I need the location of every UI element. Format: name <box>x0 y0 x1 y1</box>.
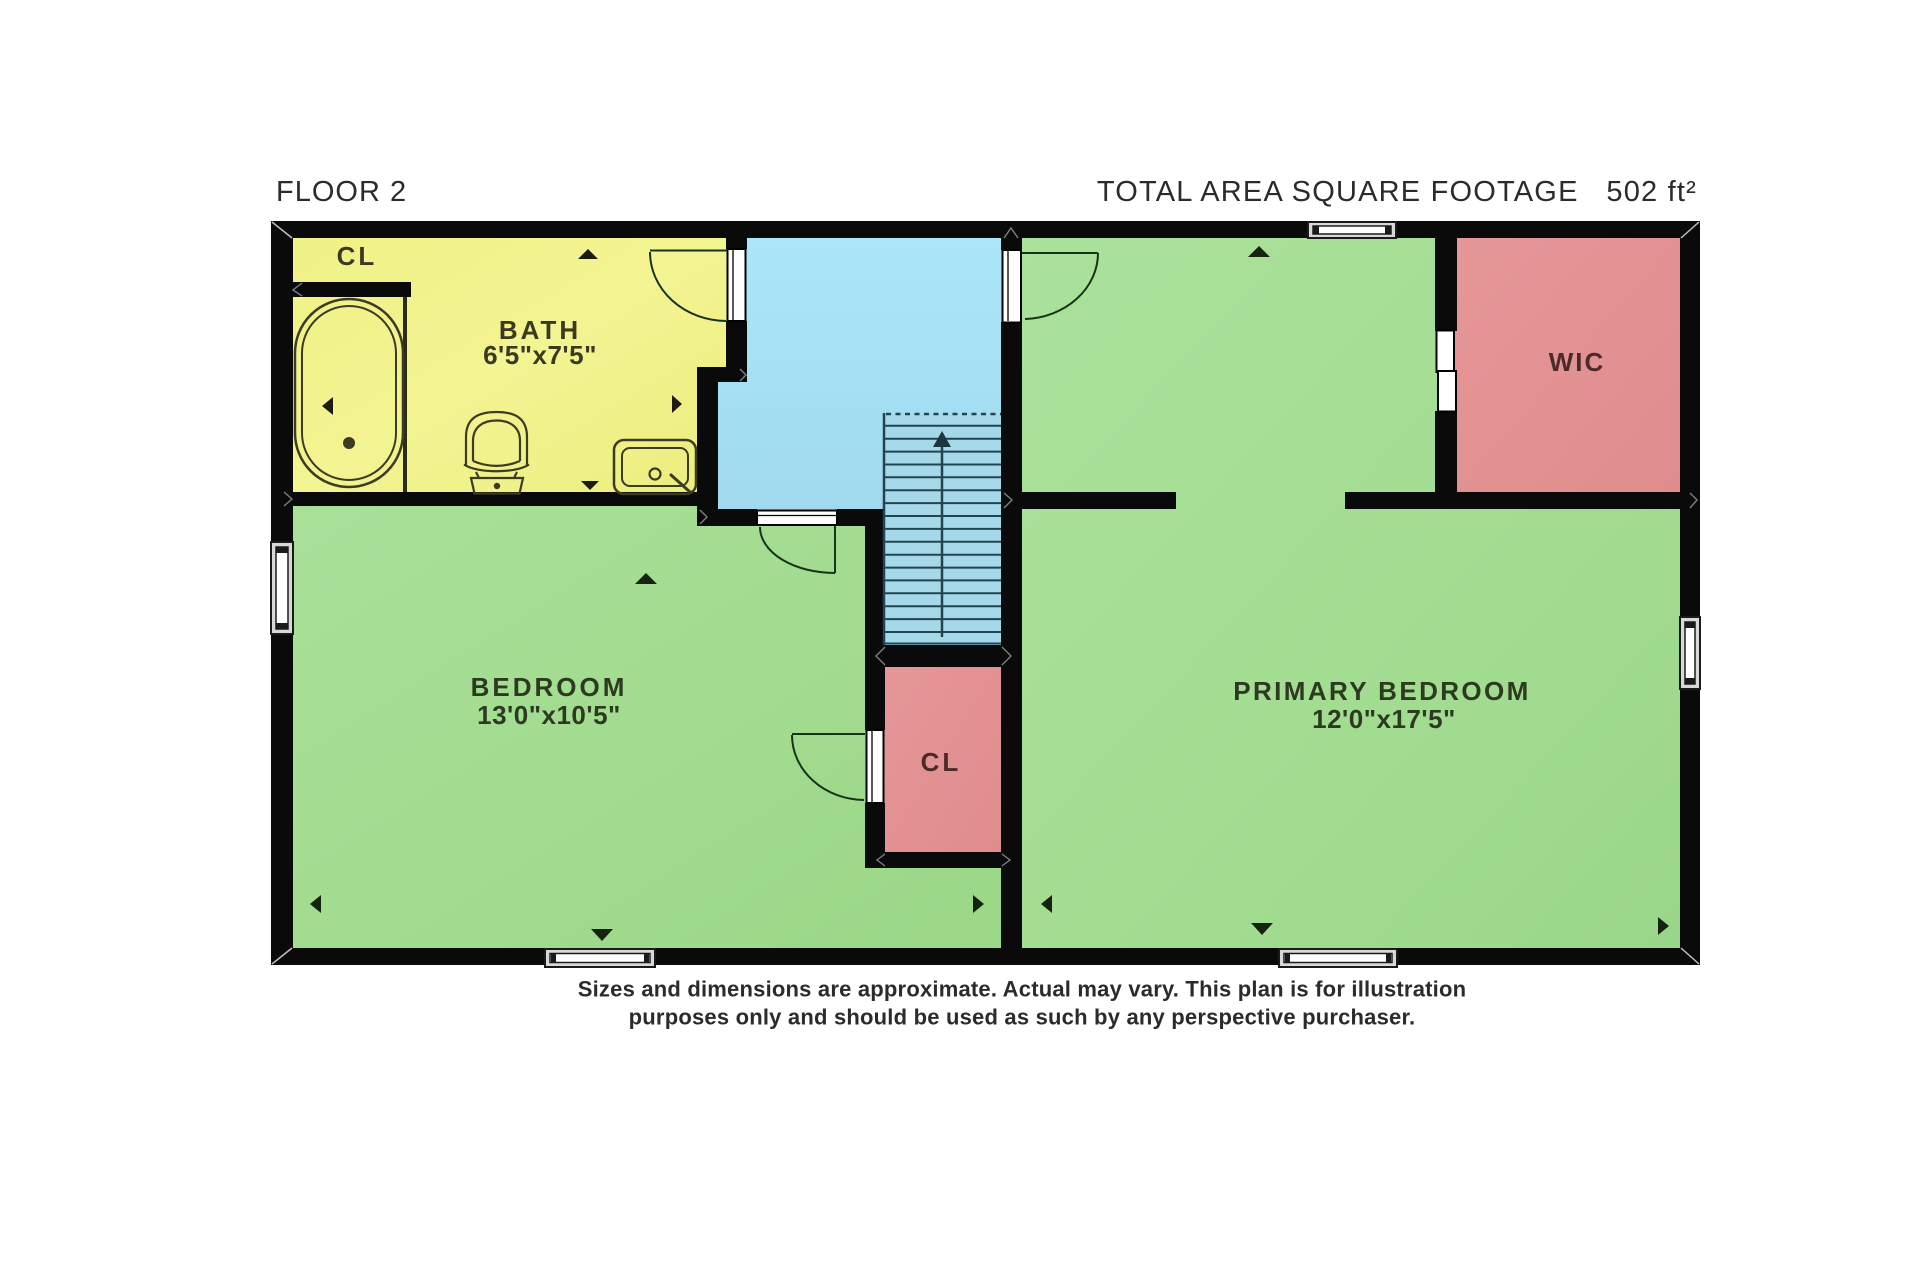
svg-text:TOTAL AREA SQUARE FOOTAGE 50: TOTAL AREA SQUARE FOOTAGE 502 ft² <box>1097 176 1697 208</box>
svg-text:purposes only and should be us: purposes only and should be used as such… <box>629 1005 1416 1030</box>
svg-text:WIC: WIC <box>1549 347 1606 377</box>
svg-text:BEDROOM: BEDROOM <box>471 672 628 702</box>
svg-text:CL: CL <box>921 747 962 777</box>
svg-text:6'5"x7'5": 6'5"x7'5" <box>483 340 597 370</box>
svg-text:CL: CL <box>337 241 378 271</box>
svg-text:FLOOR 2: FLOOR 2 <box>276 176 407 208</box>
svg-text:PRIMARY BEDROOM: PRIMARY BEDROOM <box>1233 676 1530 706</box>
svg-text:Sizes and dimensions are appro: Sizes and dimensions are approximate. Ac… <box>578 977 1467 1002</box>
svg-text:12'0"x17'5": 12'0"x17'5" <box>1312 704 1456 734</box>
svg-text:13'0"x10'5": 13'0"x10'5" <box>477 700 621 730</box>
